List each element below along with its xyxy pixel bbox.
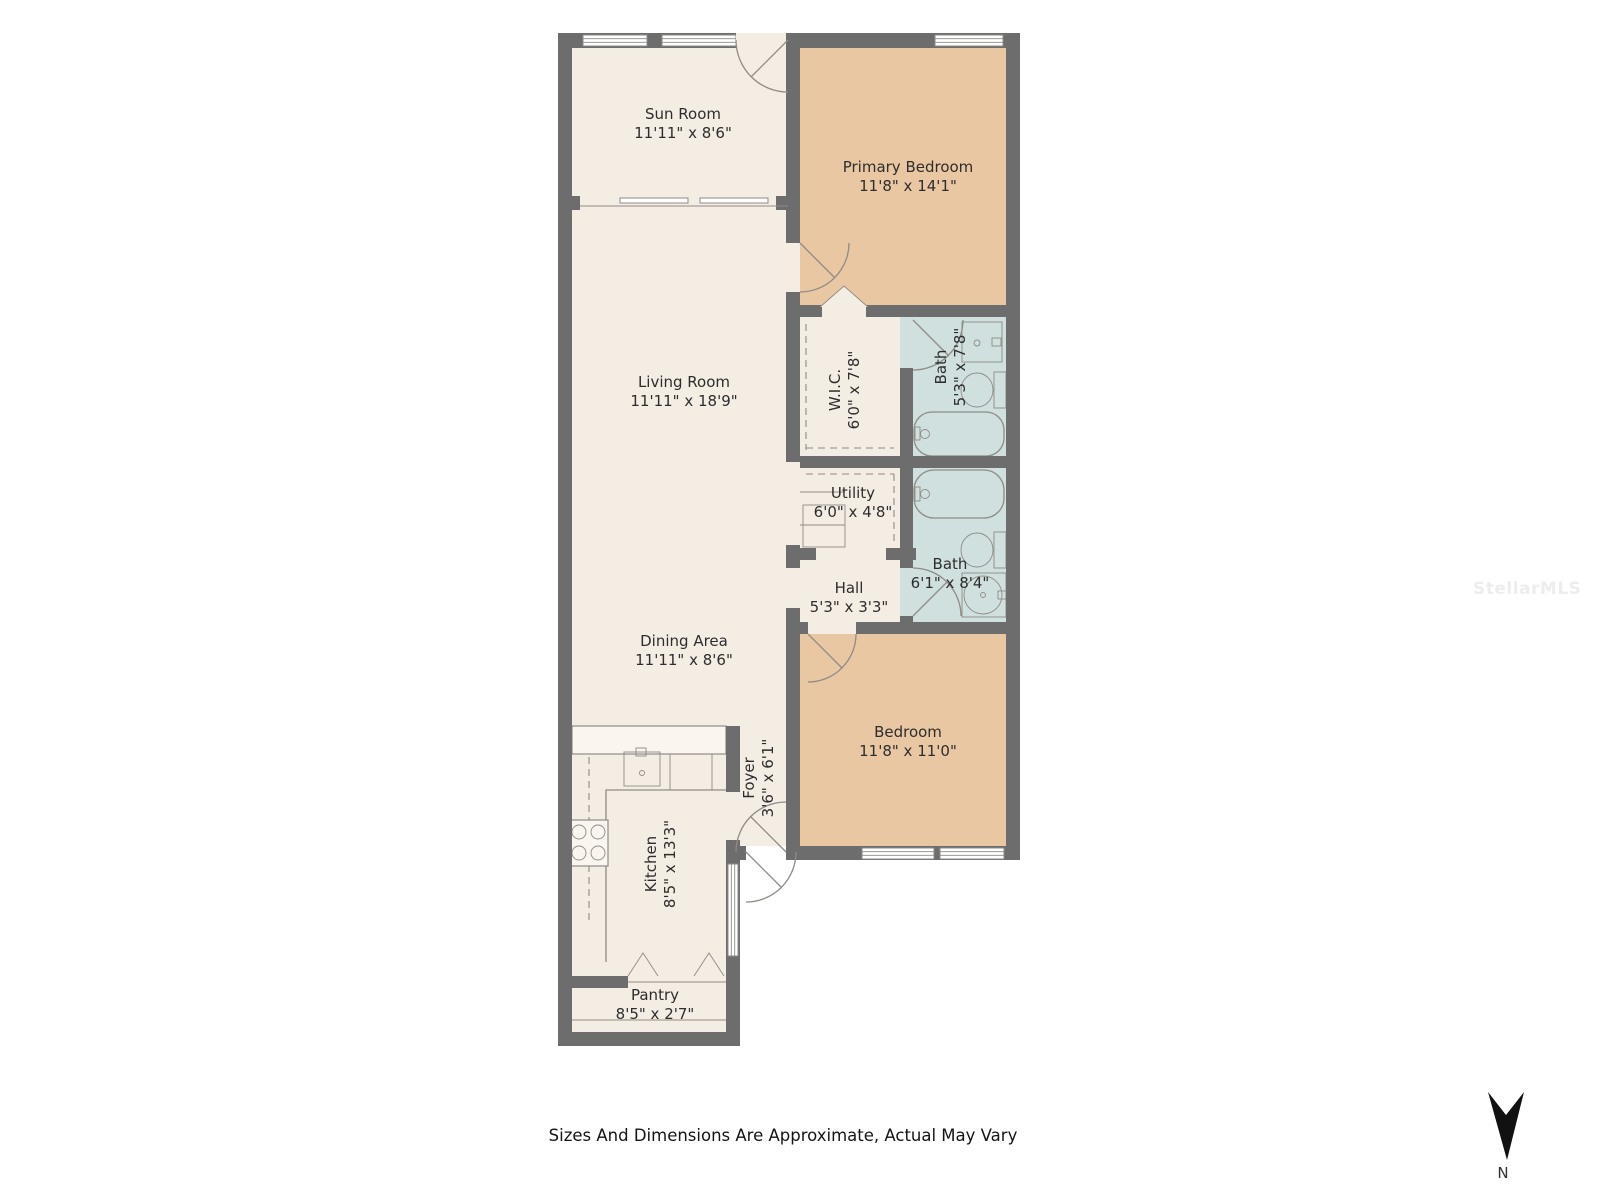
label-hall: Hall 5'3" x 3'3" bbox=[810, 579, 889, 617]
label-bath-1: Bath 5'3" x 7'8" bbox=[932, 328, 970, 407]
room-name: Living Room bbox=[630, 373, 737, 392]
sunroom-window-2 bbox=[662, 35, 736, 46]
room-dims: 6'0" x 4'8" bbox=[814, 503, 893, 522]
label-bedroom: Bedroom 11'8" x 11'0" bbox=[859, 723, 957, 761]
bedroom-door-opening bbox=[808, 622, 856, 634]
room-name: Kitchen bbox=[642, 820, 661, 908]
label-utility: Utility 6'0" x 4'8" bbox=[814, 484, 893, 522]
kitchen-foyer-opening bbox=[726, 792, 740, 840]
kitchen-peninsula-counter bbox=[572, 726, 726, 754]
label-dining-area: Dining Area 11'11" x 8'6" bbox=[635, 632, 733, 670]
room-dims: 6'0" x 7'8" bbox=[845, 351, 864, 430]
room-dims: 8'5" x 2'7" bbox=[616, 1005, 695, 1024]
label-sun-room: Sun Room 11'11" x 8'6" bbox=[634, 105, 732, 143]
room-dims: 11'11" x 8'6" bbox=[634, 124, 732, 143]
room-dims: 5'3" x 7'8" bbox=[951, 328, 970, 407]
room-name: Bath bbox=[932, 328, 951, 407]
room-name: W.I.C. bbox=[826, 351, 845, 430]
room-dims: 5'3" x 3'3" bbox=[810, 598, 889, 617]
room-name: Bedroom bbox=[859, 723, 957, 742]
label-foyer: Foyer 3'6" x 6'1" bbox=[740, 739, 778, 818]
room-name: Bath bbox=[911, 555, 990, 574]
sunroom-window-1 bbox=[583, 35, 647, 46]
bedroom-window-2 bbox=[940, 848, 1004, 859]
utility-west-opening bbox=[786, 462, 800, 545]
label-wic: W.I.C. 6'0" x 7'8" bbox=[826, 351, 864, 430]
room-dims: 8'5" x 13'3" bbox=[661, 820, 680, 908]
label-kitchen: Kitchen 8'5" x 13'3" bbox=[642, 820, 680, 908]
room-name: Foyer bbox=[740, 739, 759, 818]
north-label: N bbox=[1468, 1164, 1538, 1182]
label-pantry: Pantry 8'5" x 2'7" bbox=[616, 986, 695, 1024]
room-dims: 3'6" x 6'1" bbox=[759, 739, 778, 818]
label-bath-2: Bath 6'1" x 8'4" bbox=[911, 555, 990, 593]
room-name: Hall bbox=[810, 579, 889, 598]
sunroom-door-opening bbox=[736, 33, 786, 48]
utility-bifold-opening bbox=[816, 548, 886, 560]
room-dims: 11'8" x 14'1" bbox=[843, 177, 974, 196]
room-dims: 11'8" x 11'0" bbox=[859, 742, 957, 761]
room-name: Sun Room bbox=[634, 105, 732, 124]
disclaimer-text: Sizes And Dimensions Are Approximate, Ac… bbox=[0, 1126, 1566, 1145]
hall-west-opening bbox=[786, 568, 800, 608]
watermark: StellarMLS bbox=[1473, 579, 1581, 599]
label-primary-bedroom: Primary Bedroom 11'8" x 14'1" bbox=[843, 158, 974, 196]
bedroom-window-1 bbox=[862, 848, 934, 859]
room-dims: 6'1" x 8'4" bbox=[911, 574, 990, 593]
bath1-door-opening bbox=[900, 317, 913, 368]
kitchen-window bbox=[728, 864, 738, 956]
room-dims: 11'11" x 18'9" bbox=[630, 392, 737, 411]
stove-icon bbox=[568, 820, 608, 866]
primary-door-opening bbox=[786, 243, 800, 292]
label-living-room: Living Room 11'11" x 18'9" bbox=[630, 373, 737, 411]
room-name: Primary Bedroom bbox=[843, 158, 974, 177]
floor-plan-page: Sun Room 11'11" x 8'6" Primary Bedroom 1… bbox=[0, 0, 1600, 1200]
room-name: Dining Area bbox=[635, 632, 733, 651]
north-compass: N bbox=[1468, 1085, 1538, 1185]
room-name: Utility bbox=[814, 484, 893, 503]
room-dims: 11'11" x 8'6" bbox=[635, 651, 733, 670]
floor-plan-drawing bbox=[0, 0, 1600, 1200]
north-arrow-icon bbox=[1475, 1085, 1531, 1163]
room-name: Pantry bbox=[616, 986, 695, 1005]
primary-bedroom-window bbox=[935, 35, 1003, 46]
